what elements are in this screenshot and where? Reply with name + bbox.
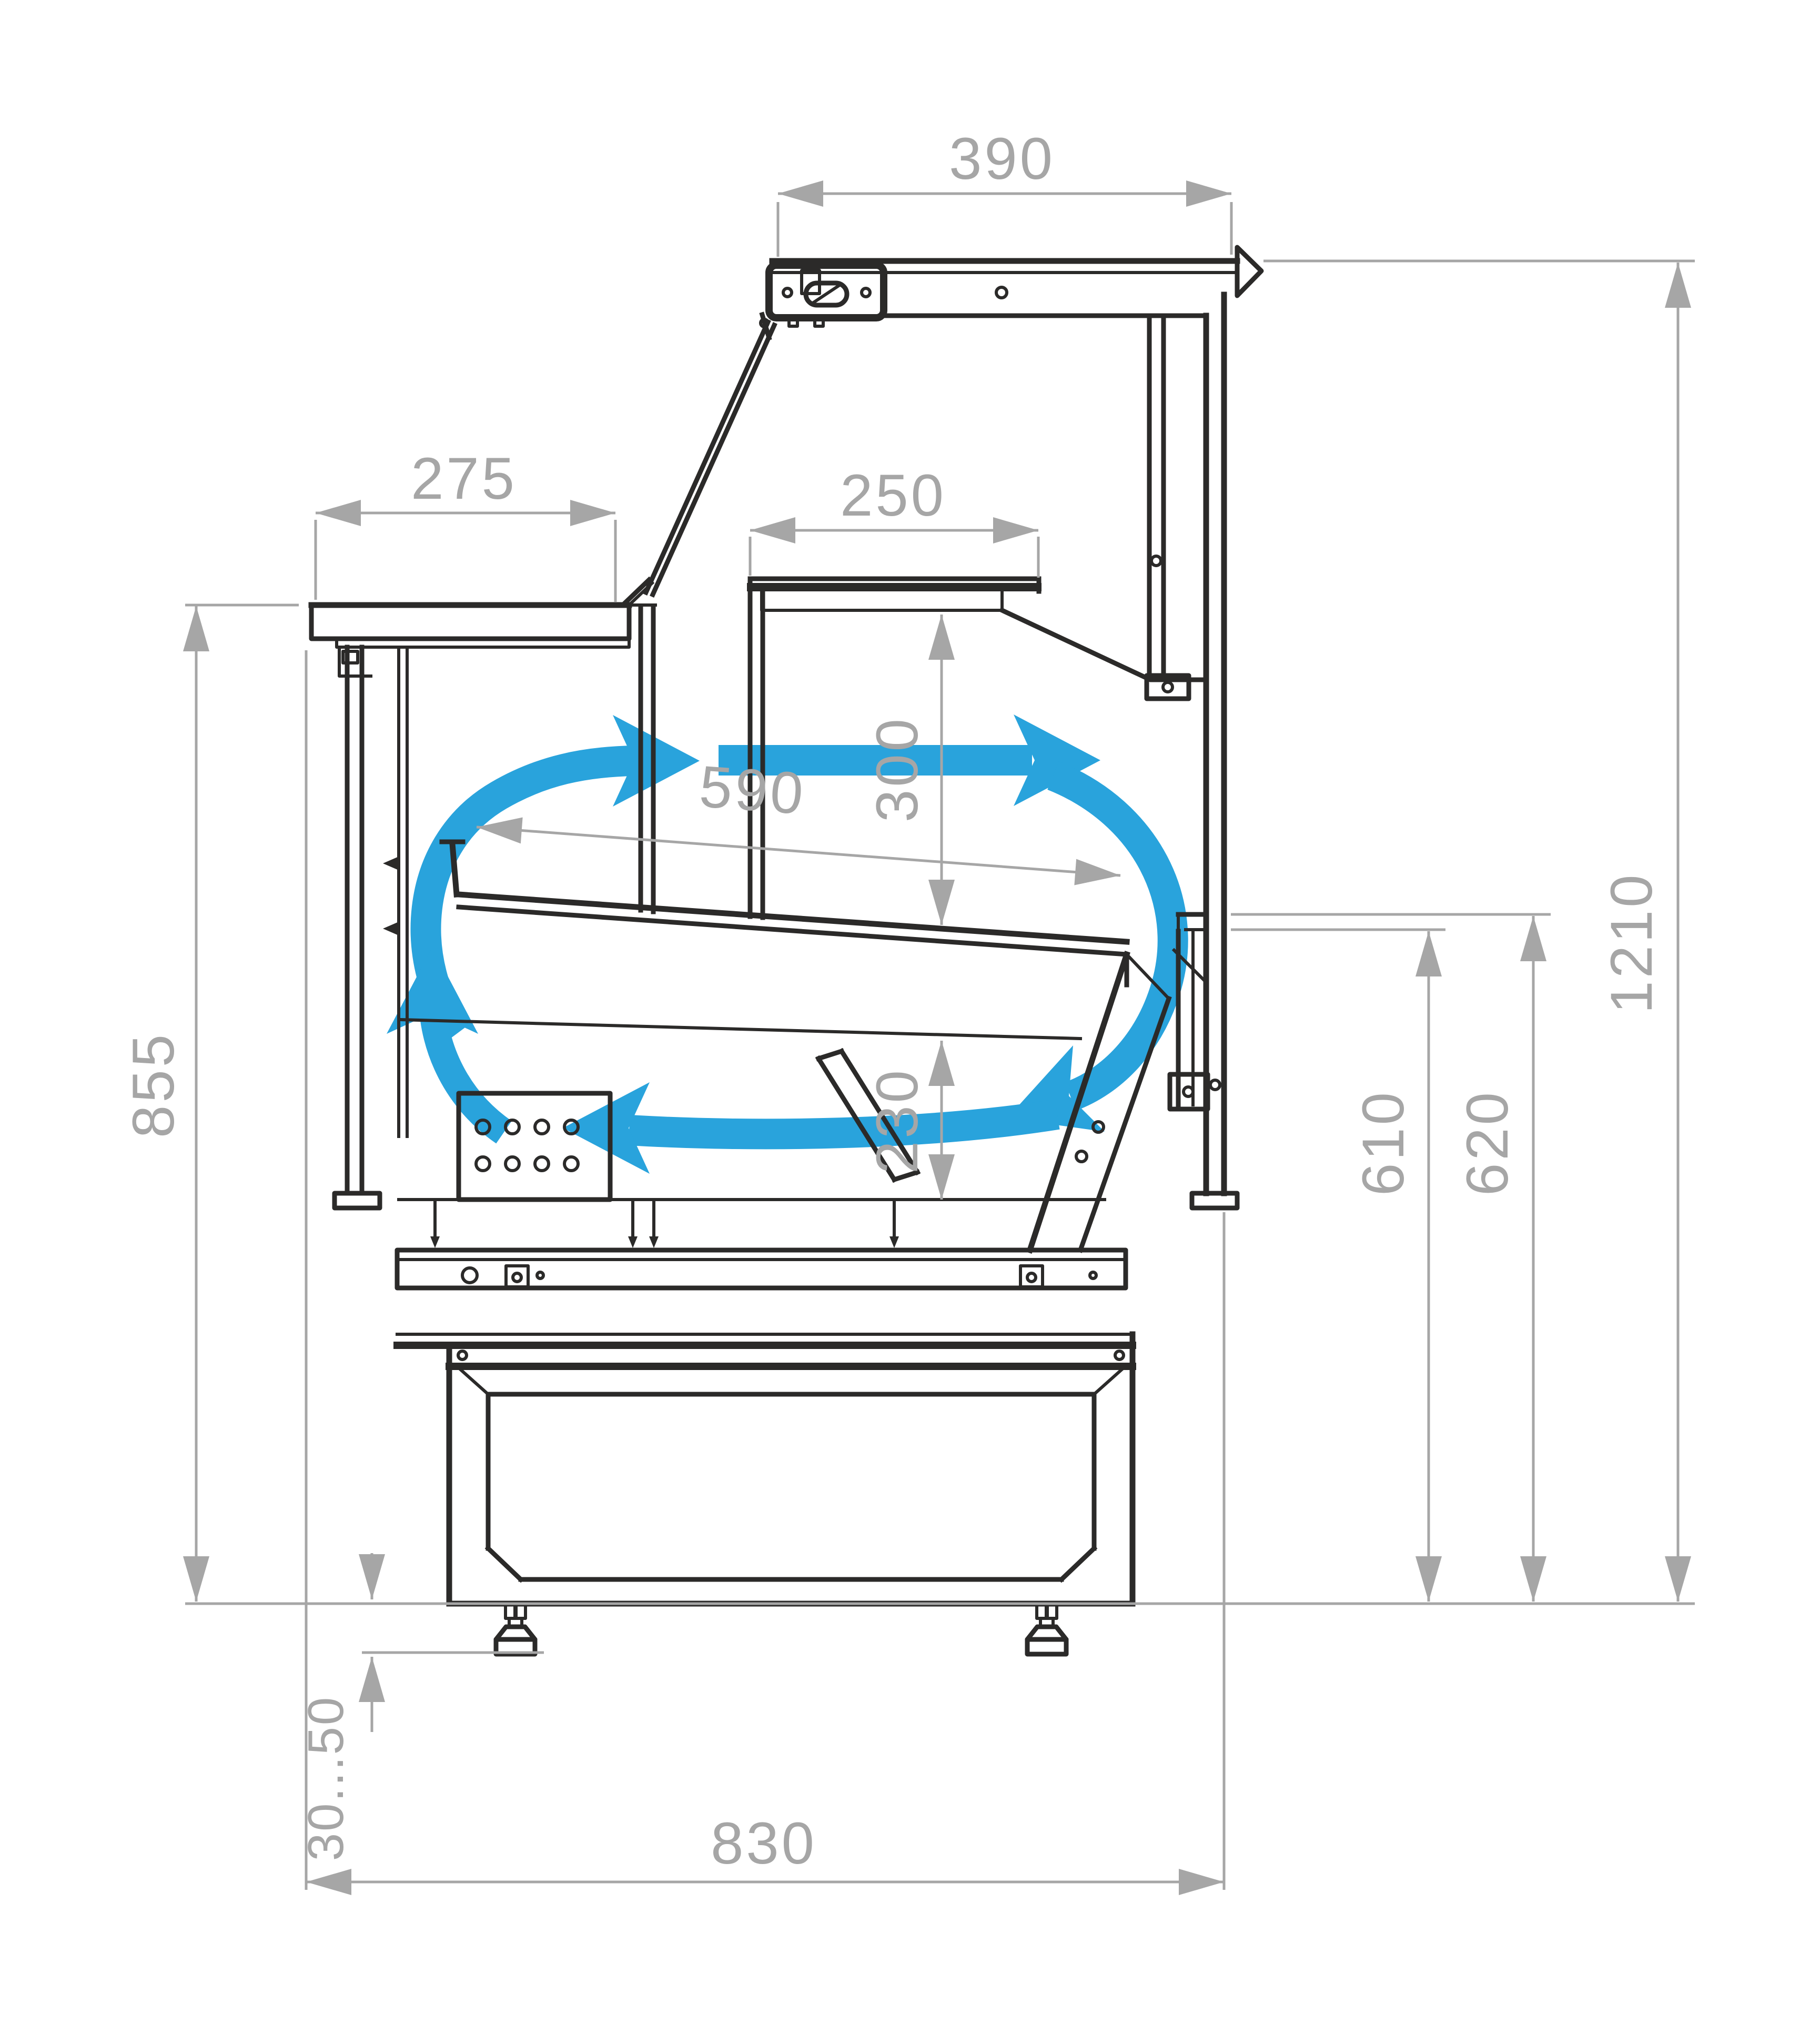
glass-front — [646, 315, 774, 595]
dim-label-1210: 1210 — [1599, 872, 1664, 1013]
counter-cross-section-drawing: 390 275 250 300 590 230 — [0, 0, 1820, 2034]
dim-label-610: 610 — [1350, 1090, 1416, 1196]
rear-shelf — [747, 579, 1206, 699]
dim-shelf-depth: 250 — [750, 462, 1038, 578]
leveling-feet — [496, 1604, 1066, 1654]
wall-clip-icon — [383, 857, 399, 870]
technical-drawing-page: 390 275 250 300 590 230 — [0, 0, 1820, 2034]
dim-rear-edge-height: 620 — [1231, 914, 1551, 1602]
airflow-straight-left-icon — [629, 1114, 1057, 1134]
dim-leg-adjustment: 30...50 — [298, 1553, 372, 1861]
dim-canopy-depth: 390 — [778, 126, 1231, 257]
dim-label-855: 855 — [120, 1032, 186, 1138]
dim-label-390: 390 — [949, 126, 1055, 192]
dim-label-275: 275 — [411, 446, 517, 511]
datum-lines — [185, 1604, 1695, 1653]
dim-rear-deck-height: 610 — [1231, 930, 1445, 1602]
dimensions: 390 275 250 300 590 230 — [120, 126, 1695, 1890]
canopy-screw-icon — [996, 287, 1007, 298]
leveling-foot-left — [496, 1604, 535, 1654]
dim-label-830: 830 — [711, 1810, 817, 1876]
dim-label-300: 300 — [864, 716, 930, 822]
canopy — [769, 247, 1261, 326]
dim-label-620: 620 — [1454, 1090, 1520, 1196]
base-cabinet — [397, 1334, 1133, 1604]
base-frame — [397, 1250, 1126, 1288]
dim-worktop-depth: 275 — [316, 446, 615, 602]
left-wall — [335, 647, 407, 1208]
display-deck — [442, 842, 1127, 985]
drain-pins — [430, 1203, 899, 1248]
dim-worktop-height: 855 — [120, 605, 299, 1602]
dim-overall-height: 1210 — [1263, 261, 1695, 1602]
dim-label-250: 250 — [840, 462, 946, 528]
dim-display-opening-height: 300 — [864, 615, 942, 925]
dim-label-590: 590 — [697, 753, 808, 827]
leveling-foot-right — [1027, 1604, 1066, 1654]
wall-clip-icon — [383, 922, 399, 935]
dim-label-230: 230 — [864, 1068, 930, 1174]
